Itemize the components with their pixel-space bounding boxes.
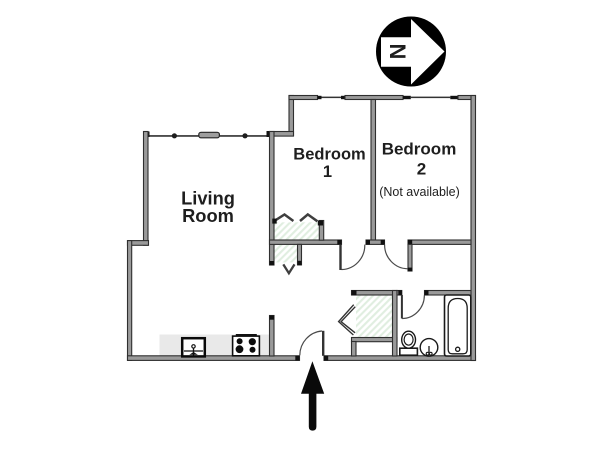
svg-text:Bedroom: Bedroom: [382, 140, 457, 159]
svg-text:1: 1: [323, 163, 332, 181]
svg-text:2: 2: [417, 160, 426, 179]
svg-text:Room: Room: [182, 205, 234, 226]
svg-text:(Not available): (Not available): [379, 185, 460, 199]
svg-text:Bedroom: Bedroom: [293, 146, 365, 164]
svg-text:N: N: [385, 44, 410, 60]
